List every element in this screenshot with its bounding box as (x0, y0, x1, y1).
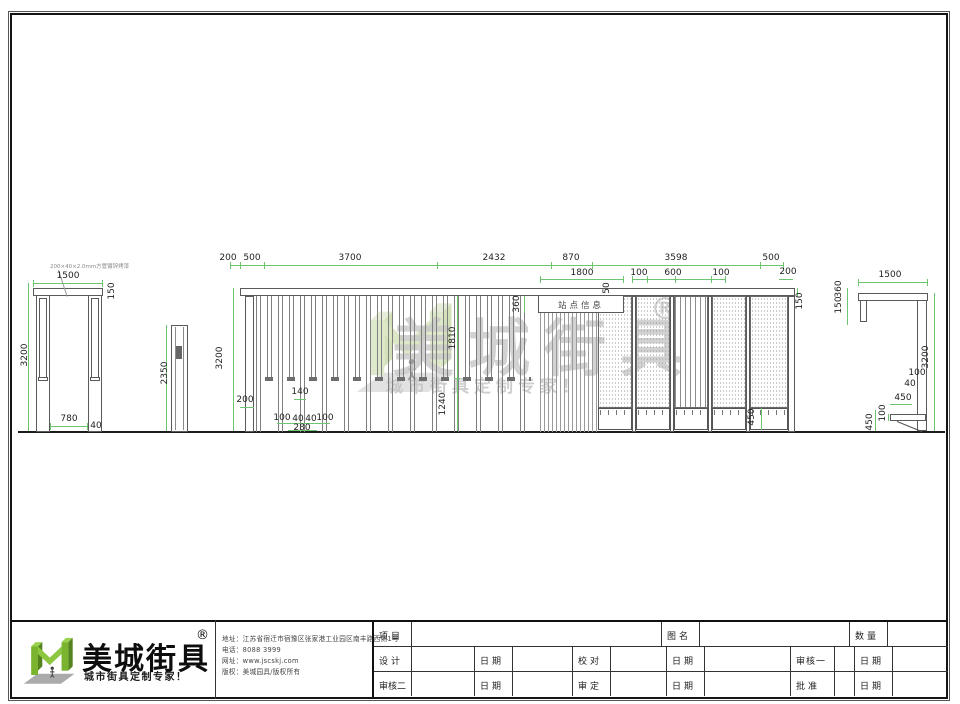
slat-field-short (267, 296, 529, 380)
dim-label: 40 (900, 379, 920, 389)
table-row: 项目 图名 数量 (374, 622, 948, 647)
dim-label: 2350 (160, 358, 170, 388)
post-inner-line (175, 327, 176, 430)
dim-label: 1800 (560, 268, 604, 278)
screen-panel (636, 296, 670, 408)
dim-label: 450 (747, 405, 757, 429)
table-label-design: 设计 (374, 647, 412, 671)
company-tagline: 城市街具定制专家！ (84, 668, 188, 683)
table-label-review-1: 审核一 (791, 647, 835, 671)
contact-address: 地址：江苏省宿迁市宿豫区张家港工业园区南丰路西侧1号 (222, 634, 370, 645)
table-label-ratify: 批准 (791, 672, 835, 696)
fine-stripe-panel (540, 296, 598, 432)
screen-panel (712, 296, 746, 408)
dim-label: 500 (756, 253, 786, 263)
dim-label: 870 (556, 253, 586, 263)
dim-label: 100 (905, 368, 929, 378)
table-label-project: 项目 (374, 622, 412, 646)
signature-table: 项目 图名 数量 设计 日期 校对 日期 审核一 日期 (374, 622, 948, 697)
right-drop-element (860, 300, 867, 322)
table-label-date: 日期 (667, 672, 705, 696)
left-slat-b (91, 298, 99, 378)
dim-label: 150 (795, 291, 805, 311)
table-value[interactable] (893, 647, 946, 671)
table-row: 设计 日期 校对 日期 审核一 日期 (374, 647, 948, 672)
dim-label: 3200 (20, 341, 30, 369)
company-logo-icon (20, 631, 82, 693)
dim-label: 200 (233, 395, 257, 405)
slat-feet-row (265, 377, 531, 381)
table-label-drawing-name: 图名 (662, 622, 700, 646)
table-value[interactable] (835, 647, 855, 671)
info-sign-text: 站点信息 (539, 299, 623, 311)
dim-label: 200 (776, 267, 800, 277)
screen-panel (750, 296, 788, 408)
table-label-quantity: 数量 (850, 622, 888, 646)
dim-label: 450 (865, 410, 875, 434)
dim-label: 500 (237, 253, 267, 263)
dim-label: 100 (314, 413, 336, 423)
dim-label: 780 (50, 414, 88, 424)
table-label-approve-check: 审定 (573, 672, 611, 696)
post-plaque (176, 346, 182, 359)
center-right-post (788, 296, 795, 432)
company-registered-icon: ® (196, 628, 209, 643)
dim-label: 600 (659, 268, 687, 278)
dim-label: 2432 (479, 253, 509, 263)
dim-label: 360 (512, 294, 522, 314)
dim-label: 100 (707, 268, 735, 278)
table-row: 审核二 日期 审定 日期 批准 日期 (374, 672, 948, 696)
dim-label: 280 (290, 423, 314, 433)
table-label-date: 日期 (667, 647, 705, 671)
left-slat-a (39, 298, 47, 378)
dim-label: 50 (602, 280, 612, 296)
panel-base (674, 408, 708, 430)
dim-label: 3200 (215, 344, 225, 372)
dim-label: 1500 (38, 271, 98, 281)
table-label-proofread: 校对 (573, 647, 611, 671)
table-value[interactable] (611, 672, 667, 696)
table-label-date: 日期 (475, 647, 513, 671)
dim-label: 150 (107, 279, 117, 303)
table-value[interactable] (705, 672, 791, 696)
dim-label: 1810 (448, 323, 458, 353)
cad-sheet: 美城街具 ® 城市街具定制专家！ 200×40×2.0mm方管镀锌烤漆 1500… (0, 0, 960, 704)
table-value[interactable] (705, 647, 791, 671)
panel-base (598, 408, 632, 430)
post-body (171, 325, 188, 432)
panel-base (712, 408, 746, 430)
bench-seat (890, 414, 926, 421)
table-label-date: 日期 (855, 647, 893, 671)
dim-label: 450 (890, 393, 916, 403)
dim-label: 3700 (335, 253, 365, 263)
table-value[interactable] (412, 672, 475, 696)
panel-base (636, 408, 670, 430)
table-value[interactable] (888, 622, 948, 646)
table-value[interactable] (513, 672, 573, 696)
table-label-review-2: 审核二 (374, 672, 412, 696)
table-value[interactable] (611, 647, 667, 671)
dim-label: 100 (272, 413, 292, 423)
contact-phone: 电话：8088 3999 (222, 645, 370, 656)
contact-website: 网址：www.jscskj.com (222, 656, 370, 667)
dim-label: 3200 (921, 343, 931, 371)
table-label-date: 日期 (855, 672, 893, 696)
table-value[interactable] (835, 672, 855, 696)
table-value[interactable] (412, 647, 475, 671)
dim-label: 1240 (438, 390, 448, 418)
screen-panel (674, 296, 708, 408)
info-sign: 站点信息 (538, 295, 624, 313)
table-value[interactable] (700, 622, 850, 646)
dim-label: 3598 (661, 253, 691, 263)
table-label-date: 日期 (475, 672, 513, 696)
table-value[interactable] (513, 647, 573, 671)
dim-label: 100 (627, 268, 651, 278)
table-value[interactable] (412, 622, 662, 646)
dim-label: 100 (878, 402, 888, 424)
dim-label: 40 (86, 421, 106, 431)
post-inner-line (183, 327, 184, 430)
dim-label: 140 (288, 387, 312, 397)
table-value[interactable] (893, 672, 946, 696)
center-left-post (245, 296, 254, 432)
titleblock-divider (215, 620, 216, 699)
left-slat-a-foot (38, 377, 48, 381)
dim-label: 1500 (868, 270, 912, 280)
contact-copyright: 版权：美城园具/版权所有 (222, 667, 370, 678)
dim-label: 150 (834, 294, 844, 316)
material-note: 200×40×2.0mm方管镀锌烤漆 (50, 262, 129, 270)
contact-block: 地址：江苏省宿迁市宿豫区张家港工业园区南丰路西侧1号 电话：8088 3999 … (222, 634, 370, 678)
left-slat-b-foot (90, 377, 100, 381)
